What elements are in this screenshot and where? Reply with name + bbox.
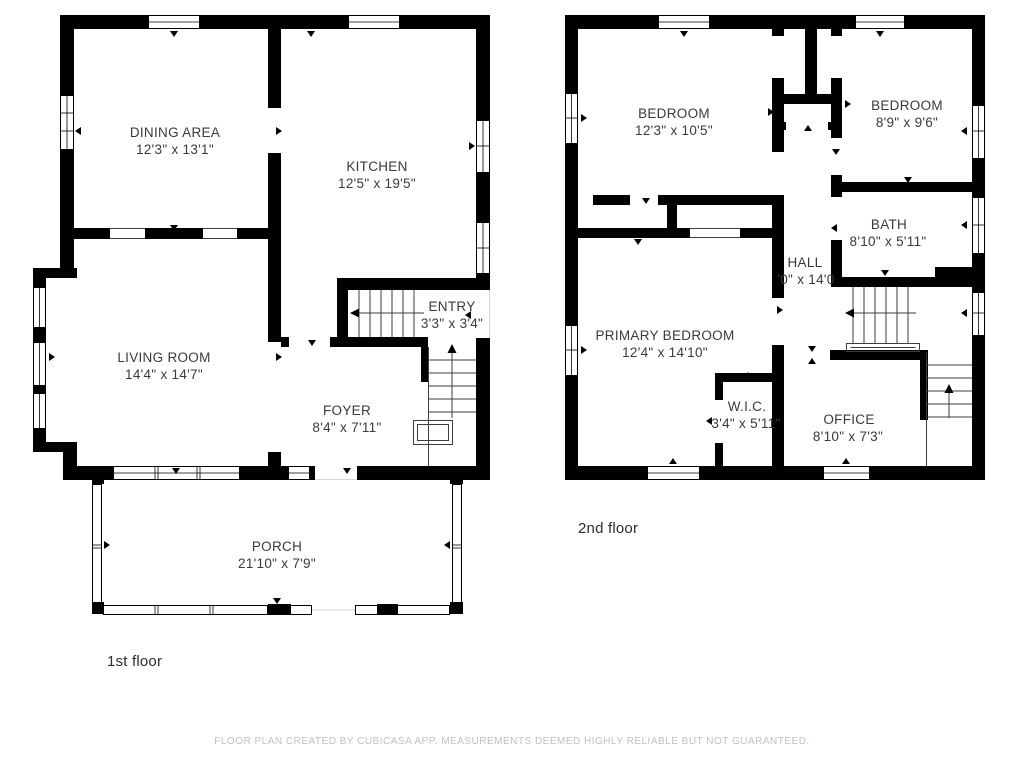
floor-plan-page: DINING AREA 12'3" x 13'1" KITCHEN 12'5" … [0, 0, 1024, 768]
window-arrow [170, 31, 178, 37]
cased-opening [110, 228, 145, 239]
first-floor-plan: DINING AREA 12'3" x 13'1" KITCHEN 12'5" … [33, 15, 490, 670]
window [856, 16, 905, 29]
window [349, 16, 400, 29]
window [149, 16, 200, 29]
room-name-office: OFFICE [823, 412, 874, 427]
room-dims-living-room: 14'4" x 14'7" [125, 367, 203, 382]
window-arrow [961, 127, 967, 135]
room-dims-wic: 3'4" x 5'11" [711, 416, 780, 431]
door-arrow [276, 127, 282, 135]
window-arrow [669, 458, 677, 464]
window [824, 467, 870, 480]
railing-arrow [104, 541, 110, 549]
window-arrow [469, 142, 475, 150]
window [973, 106, 985, 159]
stair-direction-arrow [448, 344, 457, 353]
window-arrow [49, 353, 55, 361]
second-floor-doors [690, 228, 740, 238]
room-dims-office: 8'10" x 7'3" [813, 429, 883, 444]
second-floor-room-labels: BEDROOM 12'3" x 10'5" BEDROOM 8'9" x 9'6… [595, 98, 942, 444]
window [477, 121, 490, 173]
window-arrow [581, 114, 587, 122]
window [973, 293, 985, 336]
door-arrow [831, 224, 837, 232]
first-floor-walls [33, 15, 490, 480]
room-name-primary-bedroom: PRIMARY BEDROOM [595, 328, 734, 343]
room-dims-primary-bedroom: 12'4" x 14'10" [622, 345, 708, 360]
door-arrow [808, 358, 816, 364]
room-name-kitchen: KITCHEN [346, 159, 407, 174]
door-arrow [276, 353, 282, 361]
door-arrow [634, 239, 642, 245]
room-dims-kitchen: 12'5" x 19'5" [338, 176, 416, 191]
window [34, 343, 46, 386]
room-dims-porch: 21'10" x 7'9" [238, 556, 316, 571]
sliding-opening [690, 228, 740, 238]
second-floor-plan: BEDROOM 12'3" x 10'5" BEDROOM 8'9" x 9'6… [565, 15, 985, 537]
first-floor-door-window-arrows [49, 31, 475, 604]
room-dims-bedroom-left: 12'3" x 10'5" [635, 123, 713, 138]
room-dims-bedroom-right: 8'9" x 9'6" [876, 115, 938, 130]
room-dims-bath: 8'10" x 5'11" [850, 234, 927, 249]
second-floor-label: 2nd floor [578, 520, 638, 537]
room-dims-entry: 3'3" x 3'4" [421, 316, 483, 331]
door-arrow [804, 125, 812, 131]
door-arrow [642, 198, 650, 204]
stair-direction-arrow [350, 309, 359, 318]
room-name-porch: PORCH [252, 539, 302, 554]
room-dims-foyer: 8'4" x 7'11" [312, 420, 381, 435]
door-arrow [308, 340, 316, 346]
window [566, 94, 578, 144]
room-name-hall: HALL [788, 255, 823, 270]
door-arrow [845, 100, 851, 108]
first-floor-label: 1st floor [107, 653, 162, 670]
window [566, 326, 578, 376]
room-dims-dining-area: 12'3" x 13'1" [136, 142, 214, 157]
first-floor-windows [34, 16, 490, 480]
room-name-bedroom-left: BEDROOM [638, 106, 710, 121]
window-arrow [876, 31, 884, 37]
window-arrow [307, 31, 315, 37]
room-name-living-room: LIVING ROOM [117, 350, 210, 365]
room-name-bath: BATH [871, 217, 907, 232]
window-arrow [961, 309, 967, 317]
railing-arrow [273, 598, 281, 604]
window-arrow [75, 127, 81, 135]
room-name-bedroom-right: BEDROOM [871, 98, 943, 113]
window-arrow [842, 458, 850, 464]
room-name-dining-area: DINING AREA [130, 125, 220, 140]
room-name-wic: W.I.C. [728, 399, 767, 414]
room-name-entry: ENTRY [428, 299, 475, 314]
window [659, 16, 710, 29]
window [61, 96, 74, 150]
floor-plan-drawing: DINING AREA 12'3" x 13'1" KITCHEN 12'5" … [0, 0, 1024, 768]
window [34, 288, 46, 328]
stair-direction-arrow [845, 309, 854, 318]
window [289, 467, 310, 480]
railing-arrow [444, 541, 450, 549]
cased-opening [203, 228, 237, 239]
window-arrow [961, 221, 967, 229]
window [477, 223, 490, 274]
window [34, 394, 46, 429]
stair-direction-arrow [945, 384, 954, 393]
door-arrow [777, 306, 783, 314]
room-name-foyer: FOYER [323, 403, 371, 418]
room-dims-hall: '0" x 14'0 [777, 272, 834, 287]
window [973, 198, 985, 254]
door-arrow [808, 346, 816, 352]
window-arrow [581, 346, 587, 354]
footer-disclaimer: FLOOR PLAN CREATED BY CUBICASA APP. MEAS… [0, 736, 1024, 747]
window-arrow [680, 31, 688, 37]
door-arrow [881, 270, 889, 276]
window [648, 467, 700, 480]
door-arrow [832, 149, 840, 155]
